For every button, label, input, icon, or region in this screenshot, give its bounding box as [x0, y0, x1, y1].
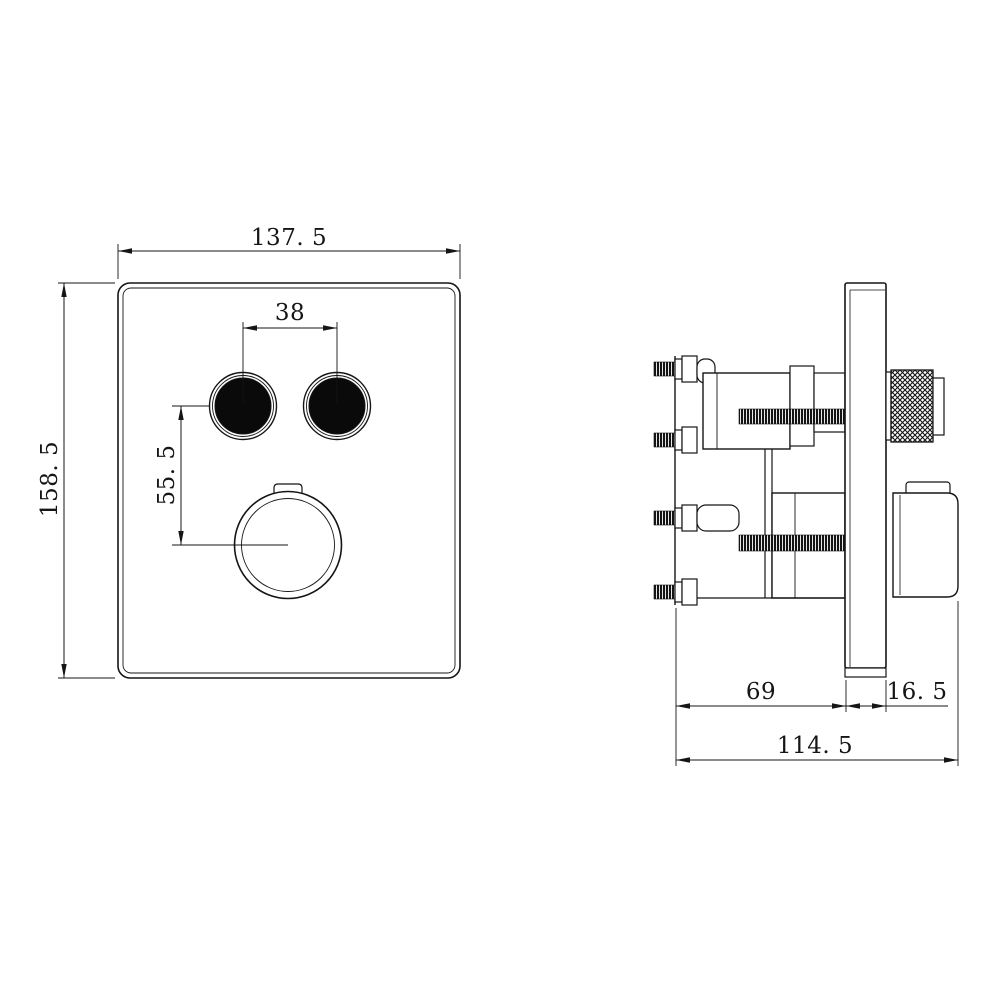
dim-front-height: 158. 5: [37, 283, 115, 678]
screw-thread: [654, 511, 675, 525]
arrowhead: [944, 757, 958, 762]
screw-thread: [654, 362, 675, 376]
dim-buttons-to-knob-text: 55. 5: [154, 444, 180, 505]
lower-knob-body: [893, 493, 958, 597]
dim-total-depth: 114. 5: [676, 733, 958, 763]
cartridge-flange: [790, 366, 814, 446]
side-plate-outline: [845, 283, 886, 668]
arrowhead: [872, 703, 886, 708]
arrowhead: [676, 757, 690, 762]
arrowhead: [446, 248, 460, 253]
dim-front-height-text: 158. 5: [37, 441, 63, 517]
side-screw-fitting-4: [654, 579, 697, 605]
side-upper-cartridge: [697, 359, 845, 449]
dim-button-spacing-text: 38: [275, 300, 305, 326]
side-view: [654, 283, 958, 677]
arrowhead: [118, 248, 132, 253]
dim-trim-depth-text: 16. 5: [886, 679, 947, 705]
screw-washer: [675, 359, 682, 379]
screw-washer: [675, 430, 682, 450]
dim-total-depth-text: 114. 5: [777, 733, 853, 759]
arrowhead: [61, 283, 66, 297]
side-screw-fitting-3: [654, 505, 697, 531]
screw-body: [682, 356, 697, 382]
screw-body: [682, 427, 697, 453]
dim-body-depth: 69: [676, 679, 846, 709]
arrowhead: [846, 703, 860, 708]
screw-body: [682, 579, 697, 605]
lower-threaded-rod: [739, 535, 847, 551]
side-dimensions: 69 16. 5 114. 5: [676, 601, 958, 766]
side-screw-fitting-1: [654, 356, 697, 382]
side-screw-fitting-2: [654, 427, 697, 453]
side-face-plate: [845, 283, 886, 677]
side-upper-knob: [886, 370, 944, 442]
side-support-arm: [765, 449, 772, 598]
upper-knob-base: [886, 372, 891, 440]
arrowhead: [832, 703, 846, 708]
screw-thread: [654, 433, 675, 447]
technical-drawing-page: 137. 5 158. 5 38 55. 5: [0, 0, 1000, 1000]
side-plate-foot: [845, 668, 886, 677]
dim-front-width: 137. 5: [118, 225, 460, 279]
side-lower-knob: [893, 482, 958, 597]
dim-trim-depth: 16. 5: [846, 679, 948, 709]
upper-knob-knurled-grip: [891, 370, 933, 442]
screw-body: [682, 505, 697, 531]
screw-washer: [675, 508, 682, 528]
arrowhead: [676, 703, 690, 708]
upper-threaded-rod: [739, 409, 847, 424]
dim-front-width-text: 137. 5: [251, 225, 327, 251]
lower-inlet-stub: [697, 505, 739, 531]
screw-thread: [654, 585, 675, 599]
screw-washer: [675, 582, 682, 602]
arrowhead: [61, 664, 66, 678]
upper-knob-cap: [933, 378, 944, 435]
shower-valve-dimension-drawing: 137. 5 158. 5 38 55. 5: [0, 0, 1000, 1000]
dim-body-depth-text: 69: [746, 679, 776, 705]
